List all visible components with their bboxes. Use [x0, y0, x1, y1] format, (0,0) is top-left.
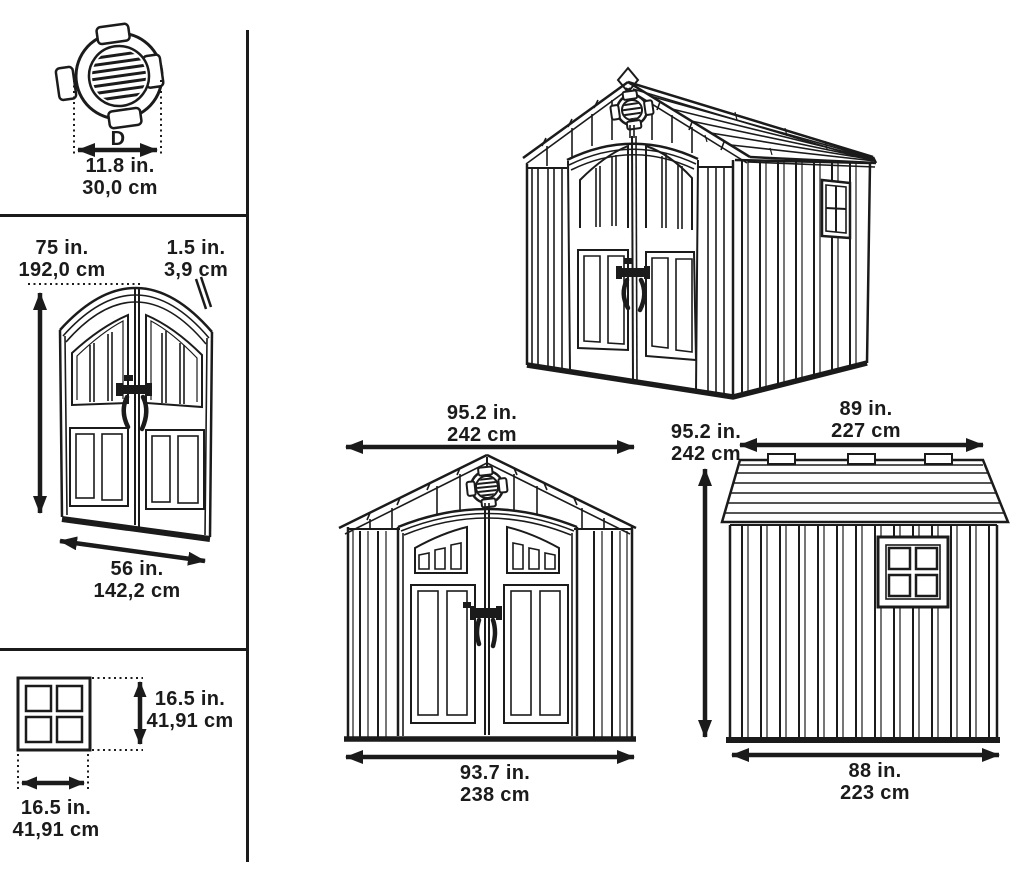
front-doors	[398, 509, 577, 736]
side-roof-depth-label: 89 in. 227 cm	[831, 398, 901, 442]
double-door-drawing	[60, 288, 212, 539]
perspective-side-wall	[735, 160, 870, 395]
vent-diameter-label: 11.8 in. 30,0 cm	[82, 155, 158, 199]
window-width-label: 16.5 in. 41,91 cm	[13, 797, 100, 841]
front-gable-vent	[465, 465, 509, 509]
door-thickness-tick	[196, 277, 211, 309]
side-wall	[730, 525, 997, 740]
front-roof-width-label: 95.2 in. 242 cm	[447, 402, 517, 446]
front-base-width-label: 93.7 in. 238 cm	[460, 762, 530, 806]
vent-d: D	[111, 128, 126, 150]
side-window	[878, 537, 948, 607]
front-door-handles	[463, 602, 502, 646]
door-height-label: 75 in. 192,0 cm	[19, 237, 106, 281]
side-roof	[722, 454, 1008, 522]
perspective-view-drawing	[480, 40, 900, 420]
door-thickness-label: 1.5 in. 3,9 cm	[164, 237, 228, 281]
door-width-label: 56 in. 142,2 cm	[94, 558, 181, 602]
side-base-depth-label: 88 in. 223 cm	[840, 760, 910, 804]
vent-diameter-letter: D	[111, 128, 126, 150]
shed-dimension-diagram: D 11.8 in. 30,0 cm 75 in. 192,0 cm 1.5 i…	[0, 0, 1024, 874]
side-height-label: 95.2 in. 242 cm	[671, 421, 741, 465]
window-drawing	[18, 678, 90, 750]
front-view-drawing	[330, 395, 650, 810]
window-height-label: 16.5 in. 41,91 cm	[147, 688, 234, 732]
perspective-roof	[523, 68, 876, 167]
vent-drawing	[51, 20, 169, 136]
